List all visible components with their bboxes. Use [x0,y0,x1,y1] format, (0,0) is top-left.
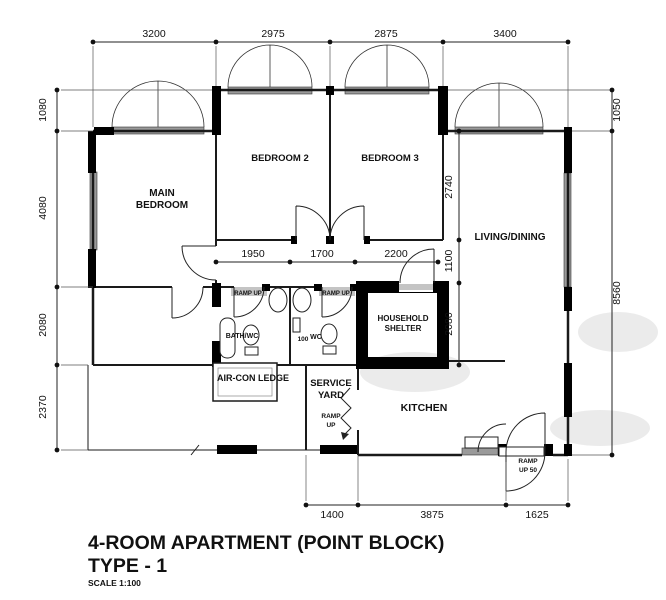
room-label-service-yard-2: YARD [318,390,344,401]
room-label-bedroom3: BEDROOM 3 [361,153,419,164]
room-label-main-bedroom-2: BEDROOM [136,200,188,211]
basin-bath2 [293,288,311,312]
dim-bottom-1: 1400 [320,509,344,521]
dim-left-3: 2080 [37,313,49,337]
plan-scale-note: SCALE 1:100 [88,578,141,588]
room-label-bath1: BATH/WC [226,333,259,340]
dim-top-3: 2875 [374,28,398,40]
room-label-service-yard-1: SERVICE [310,378,352,389]
floor-plan-page: 3200 2975 2875 3400 1080 4080 2080 2370 … [0,0,666,600]
dim-corridor-1: 1950 [241,248,265,260]
shelter-threshold [399,284,433,290]
room-label-main-bedroom-1: MAIN [149,188,175,199]
dim-inner-v-2: 1100 [443,250,455,273]
ramp-up-service-label-2: UP [326,422,336,429]
ramp-up-bath2-label: RAMP UP [322,291,350,297]
dim-top-1: 3200 [142,28,166,40]
dim-corridor-3: 2200 [384,248,408,260]
plan-title-line2: TYPE - 1 [88,555,167,577]
floor-plan: 3200 2975 2875 3400 1080 4080 2080 2370 … [0,0,666,600]
dim-right-2: 8560 [611,281,623,305]
room-label-bath2: WC [310,334,322,341]
basin-bath1 [269,288,287,312]
ramp-up-bath1-label: RAMP UP [234,291,262,297]
pipe-duct [293,318,300,332]
step-100-label: 100 [298,336,309,343]
dim-left-2: 4080 [37,196,49,220]
ramp-up-entrance-label-2: UP 50 [519,467,537,474]
ramp-up-entrance-label-1: RAMP [518,458,538,465]
ramp-up-service-label-1: RAMP [321,413,341,420]
plan-title-line1: 4-ROOM APARTMENT (POINT BLOCK) [88,532,444,554]
dim-top-2: 2975 [261,28,285,40]
window-kitchen-bottom [462,448,498,455]
room-label-kitchen: KITCHEN [401,402,448,414]
room-label-shelter-1: HOUSEHOLD [377,314,428,323]
room-label-aircon-ledge: AIR-CON LEDGE [217,373,289,383]
dim-right-1: 1050 [611,98,623,122]
dim-top-4: 3400 [493,28,517,40]
dim-bottom-2: 3875 [420,509,444,521]
dim-bottom-3: 1625 [525,509,549,521]
dim-corridor-2: 1700 [310,248,334,260]
dim-inner-v-3: 2080 [443,312,455,336]
wc-bath2 [321,324,337,344]
dim-left-1: 1080 [37,98,49,122]
dim-left-4: 2370 [37,395,49,419]
wc-tank-bath2 [323,346,336,354]
room-label-bedroom2: BEDROOM 2 [251,153,309,164]
room-label-living-dining: LIVING/DINING [474,232,545,243]
room-label-shelter-2: SHELTER [385,324,422,333]
dim-inner-v-1: 2740 [443,175,455,199]
wc-tank-bath1 [245,347,258,355]
